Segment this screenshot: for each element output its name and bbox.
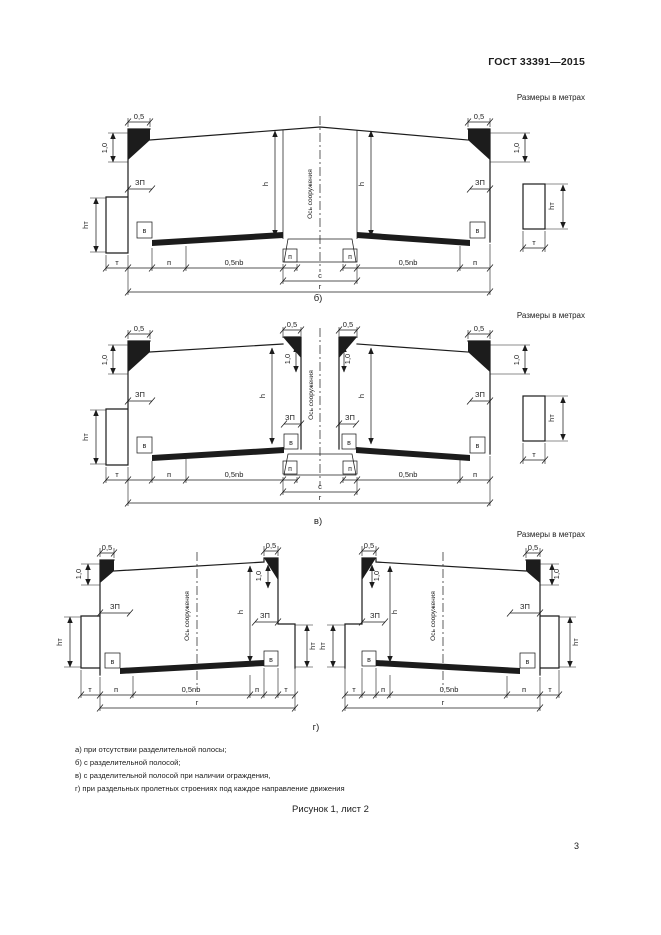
- dim-label-0-5: 0,5: [287, 320, 297, 329]
- safety-strip-label: п: [473, 470, 477, 479]
- curb-height-label: в: [347, 440, 351, 447]
- curb-height-label: в: [289, 440, 293, 447]
- ht-label: hт: [547, 202, 556, 210]
- safety-strip-label: п: [348, 254, 352, 261]
- curb-height-label: в: [526, 659, 530, 666]
- footnote-g: г) при раздельных пролетных строениях по…: [75, 782, 345, 795]
- h-label: h: [258, 394, 267, 398]
- half-lanes-label: 0,5nb: [225, 258, 244, 267]
- h-label: h: [357, 394, 366, 398]
- zp-label: ЗП: [135, 390, 145, 399]
- ht-label: hт: [81, 221, 90, 229]
- dimension-ticks: [78, 548, 562, 712]
- safety-strip-label: п: [381, 685, 385, 694]
- median-width-label: с: [318, 271, 322, 280]
- zp-label: ЗП: [475, 178, 485, 187]
- dim-label-0-5: 0,5: [134, 112, 144, 121]
- sidewalk-width-label: т: [352, 685, 356, 694]
- half-lanes-label: 0,5nb: [182, 685, 201, 694]
- dim-label-0-5: 0,5: [474, 324, 484, 333]
- curb-height-label: в: [143, 228, 147, 235]
- zp-label: ЗП: [370, 611, 380, 620]
- safety-strip-label: п: [255, 685, 259, 694]
- sidewalk-width-label: т: [532, 450, 536, 459]
- dimension-lines: [81, 551, 559, 708]
- safety-strip-label: п: [522, 685, 526, 694]
- axis-caption: Ось сооружения: [430, 591, 437, 641]
- document-page: ГОСТ 33391—2015 Размеры в метрах Размеры…: [0, 0, 661, 935]
- sidewalk-width-label: т: [532, 238, 536, 247]
- curb-height-label: в: [476, 228, 480, 235]
- sidewalk-width-label: т: [115, 258, 119, 267]
- deck-top-surface: [150, 127, 468, 140]
- zp-label: ЗП: [110, 602, 120, 611]
- dim-label-0-5: 0,5: [474, 112, 484, 121]
- ht-label: hт: [55, 638, 64, 646]
- gabarit-width-label: г: [319, 282, 322, 291]
- safety-strip-label: п: [473, 258, 477, 267]
- ht-label: hт: [547, 414, 556, 422]
- dim-label-1-0: 1,0: [283, 354, 292, 364]
- dim-label-0-5: 0,5: [343, 320, 353, 329]
- ht-label: hт: [308, 642, 317, 650]
- curb-height-label: в: [367, 657, 371, 664]
- figure-label-b: б): [314, 293, 323, 304]
- sidewalk-width-label: т: [548, 685, 552, 694]
- sidewalk-width-label: т: [88, 685, 92, 694]
- figure-g-drawing: 0,5 0,5 0,5 0,5 ЗП ЗП ЗП ЗП 1,0 1,0 1,0 …: [55, 541, 580, 733]
- dim-label-0-5: 0,5: [364, 541, 374, 550]
- deck-outline: [106, 129, 490, 253]
- figure-legend: а) при отсутствии разделительной полосы;…: [75, 743, 345, 795]
- axis-caption: Ось сооружения: [184, 591, 191, 641]
- safety-strip-label: п: [167, 258, 171, 267]
- railing-detail: [523, 184, 545, 229]
- zp-label: ЗП: [135, 178, 145, 187]
- dim-label-1-0: 1,0: [74, 569, 83, 579]
- half-lanes-label: 0,5nb: [399, 258, 418, 267]
- safety-strip-label: п: [288, 254, 292, 261]
- zp-label: ЗП: [260, 611, 270, 620]
- curb-height-label: в: [143, 443, 147, 450]
- footnote-b: б) с разделительной полосой;: [75, 756, 345, 769]
- figure-b-drawing: 0,5 0,5 ЗП ЗП 1,0 1,0 h h hт hт Ось соор…: [81, 112, 568, 304]
- median-width-label: с: [318, 482, 322, 491]
- half-lanes-label: 0,5nb: [399, 470, 418, 479]
- safety-strip-label: п: [114, 685, 118, 694]
- ht-label: hт: [318, 642, 327, 650]
- dim-label-1-0: 1,0: [343, 354, 352, 364]
- zp-label: ЗП: [520, 602, 530, 611]
- h-label: h: [236, 610, 245, 614]
- sidewalk-width-label: т: [284, 685, 288, 694]
- half-lanes-label: 0,5nb: [225, 470, 244, 479]
- figure-label-g: г): [313, 722, 320, 733]
- dim-label-1-0: 1,0: [512, 355, 521, 365]
- zp-label: ЗП: [345, 413, 355, 422]
- extension-lines: [64, 546, 576, 711]
- safety-strip-label: п: [167, 470, 171, 479]
- dim-label-1-0: 1,0: [552, 569, 561, 579]
- gabarit-width-label: г: [196, 698, 199, 707]
- axis-caption: Ось сооружения: [307, 169, 314, 219]
- curb-height-label: в: [476, 443, 480, 450]
- railing-detail: [523, 396, 545, 441]
- pavement-band-left: [120, 660, 264, 674]
- fascia-blocks: [128, 129, 490, 160]
- h-label: h: [261, 182, 270, 186]
- deck-top-surface: [150, 344, 468, 352]
- ht-label: hт: [81, 433, 90, 441]
- dim-label-0-5: 0,5: [102, 543, 112, 552]
- dim-label-1-0: 1,0: [254, 571, 263, 581]
- axis-caption: Ось сооружения: [308, 370, 315, 420]
- extension-lines: [90, 118, 568, 295]
- h-label: h: [357, 182, 366, 186]
- half-lanes-label: 0,5nb: [440, 685, 459, 694]
- figure-caption: Рисунок 1, лист 2: [0, 804, 661, 815]
- gabarit-width-label: г: [319, 493, 322, 502]
- zp-label: ЗП: [475, 390, 485, 399]
- curb-height-label: в: [111, 659, 115, 666]
- dim-label-0-5: 0,5: [134, 324, 144, 333]
- figure-v-drawing: 0,5 0,5 0,5 0,5 ЗП ЗП ЗП ЗП 1,0 1,0 1,0 …: [81, 320, 568, 527]
- sidewalk-width-label: т: [115, 470, 119, 479]
- dim-label-1-0: 1,0: [512, 143, 521, 153]
- gabarit-width-label: г: [442, 698, 445, 707]
- footnote-a: а) при отсутствии разделительной полосы;: [75, 743, 345, 756]
- safety-strip-label: п: [288, 466, 292, 473]
- dim-label-1-0: 1,0: [100, 355, 109, 365]
- pavement-band-right: [376, 660, 520, 674]
- dim-label-1-0: 1,0: [372, 571, 381, 581]
- ht-label: hт: [571, 638, 580, 646]
- h-label: h: [390, 610, 399, 614]
- figure-label-v: в): [314, 516, 322, 527]
- footnote-v: в) с разделительной полосой при наличии …: [75, 769, 345, 782]
- page-number: 3: [574, 841, 579, 851]
- dim-label-0-5: 0,5: [266, 541, 276, 550]
- dim-label-0-5: 0,5: [528, 543, 538, 552]
- curb-height-label: в: [269, 657, 273, 664]
- extension-lines: [90, 327, 568, 506]
- zp-label: ЗП: [285, 413, 295, 422]
- dim-label-1-0: 1,0: [100, 143, 109, 153]
- fascia-blocks: [128, 337, 490, 372]
- safety-strip-label: п: [348, 466, 352, 473]
